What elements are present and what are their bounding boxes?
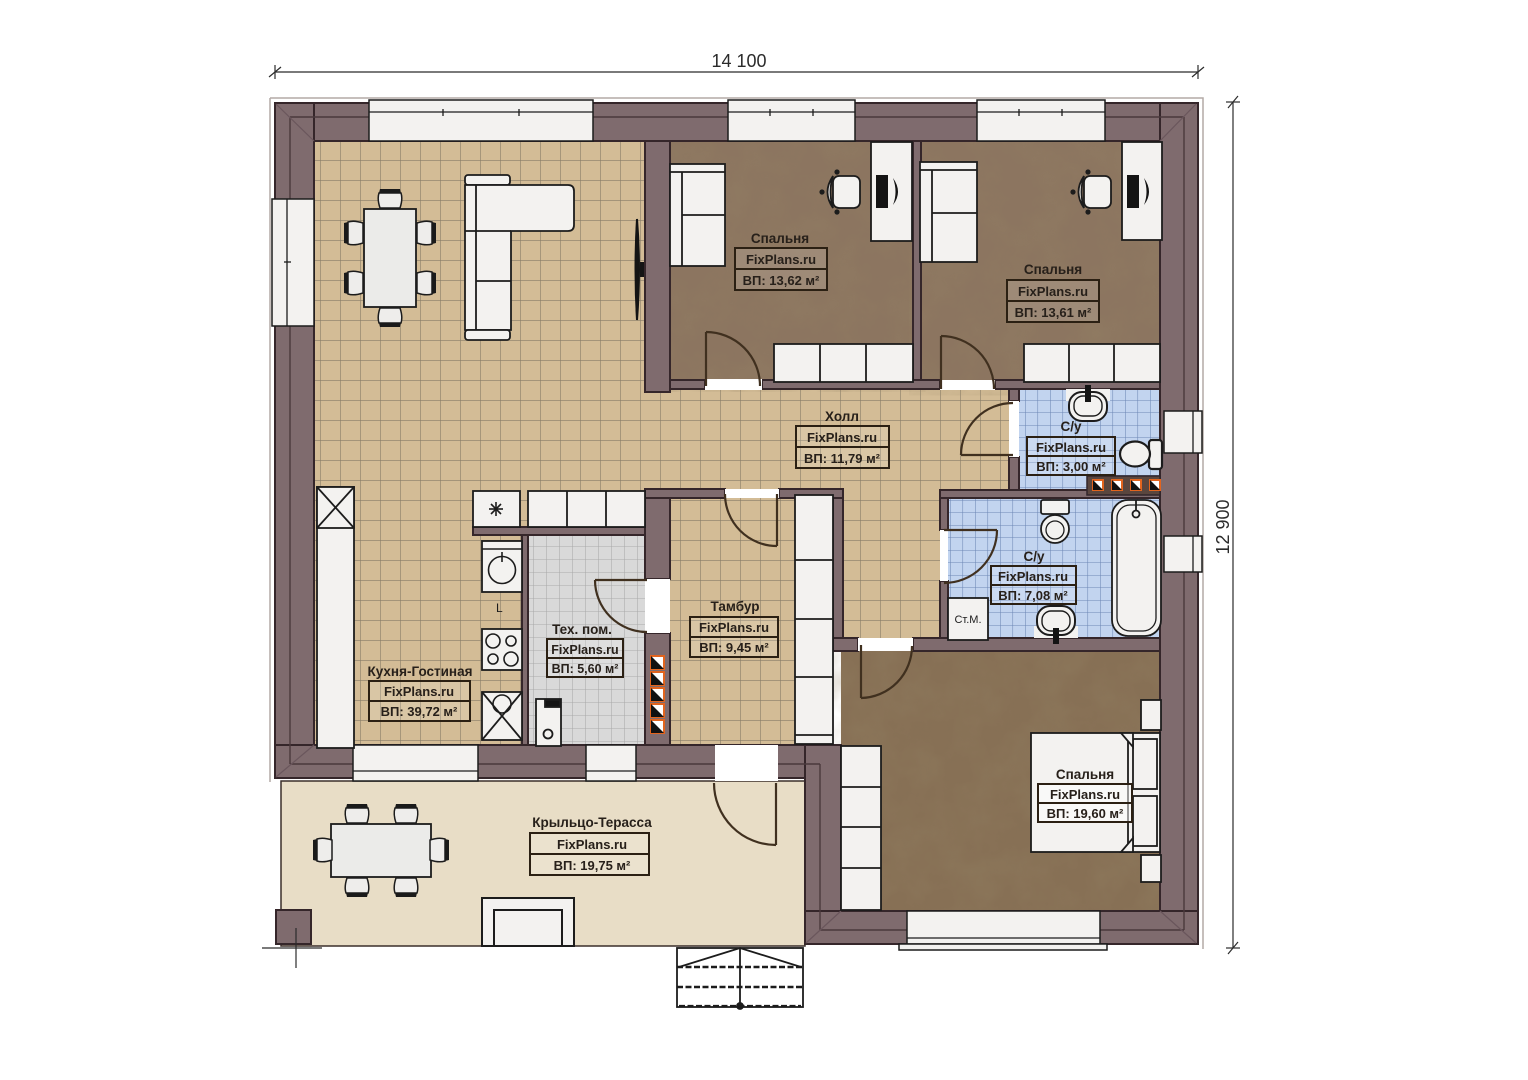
svg-text:Ст.М.: Ст.М. [954,614,981,626]
svg-text:Тамбур: Тамбур [711,599,760,614]
svg-text:Спальня: Спальня [1056,767,1114,782]
svg-text:FixPlans.ru: FixPlans.ru [1018,284,1088,299]
svg-text:С/у: С/у [1023,549,1045,564]
svg-text:FixPlans.ru: FixPlans.ru [557,837,627,852]
svg-text:Крыльцо-Терасса: Крыльцо-Терасса [532,815,652,830]
svg-text:FixPlans.ru: FixPlans.ru [699,620,769,635]
svg-text:FixPlans.ru: FixPlans.ru [998,569,1068,584]
svg-text:ВП: 19,75 м²: ВП: 19,75 м² [554,858,631,873]
svg-text:ВП: 5,60 м²: ВП: 5,60 м² [552,662,619,676]
svg-text:ВП: 3,00 м²: ВП: 3,00 м² [1036,459,1106,474]
svg-text:FixPlans.ru: FixPlans.ru [746,252,816,267]
svg-text:ВП: 13,62 м²: ВП: 13,62 м² [743,273,820,288]
svg-text:FixPlans.ru: FixPlans.ru [384,684,454,699]
svg-text:Тех. пом.: Тех. пом. [552,622,612,637]
svg-text:Холл: Холл [825,409,859,424]
svg-text:ВП: 7,08 м²: ВП: 7,08 м² [998,588,1068,603]
svg-text:ВП: 19,60 м²: ВП: 19,60 м² [1047,806,1124,821]
svg-text:FixPlans.ru: FixPlans.ru [807,430,877,445]
svg-text:FixPlans.ru: FixPlans.ru [1036,440,1106,455]
svg-text:12 900: 12 900 [1213,499,1233,554]
svg-text:Кухня-Гостиная: Кухня-Гостиная [368,664,473,679]
svg-text:ВП: 13,61 м²: ВП: 13,61 м² [1015,305,1092,320]
svg-text:ВП: 39,72 м²: ВП: 39,72 м² [381,704,458,719]
svg-text:FixPlans.ru: FixPlans.ru [551,643,618,657]
svg-text:Спальня: Спальня [1024,262,1082,277]
svg-text:Спальня: Спальня [751,231,809,246]
svg-text:С/у: С/у [1060,419,1082,434]
svg-text:L: L [496,601,503,615]
svg-text:ВП: 9,45 м²: ВП: 9,45 м² [699,640,769,655]
svg-text:14 100: 14 100 [711,51,766,71]
svg-text:ВП: 11,79 м²: ВП: 11,79 м² [804,451,881,466]
svg-text:FixPlans.ru: FixPlans.ru [1050,787,1120,802]
